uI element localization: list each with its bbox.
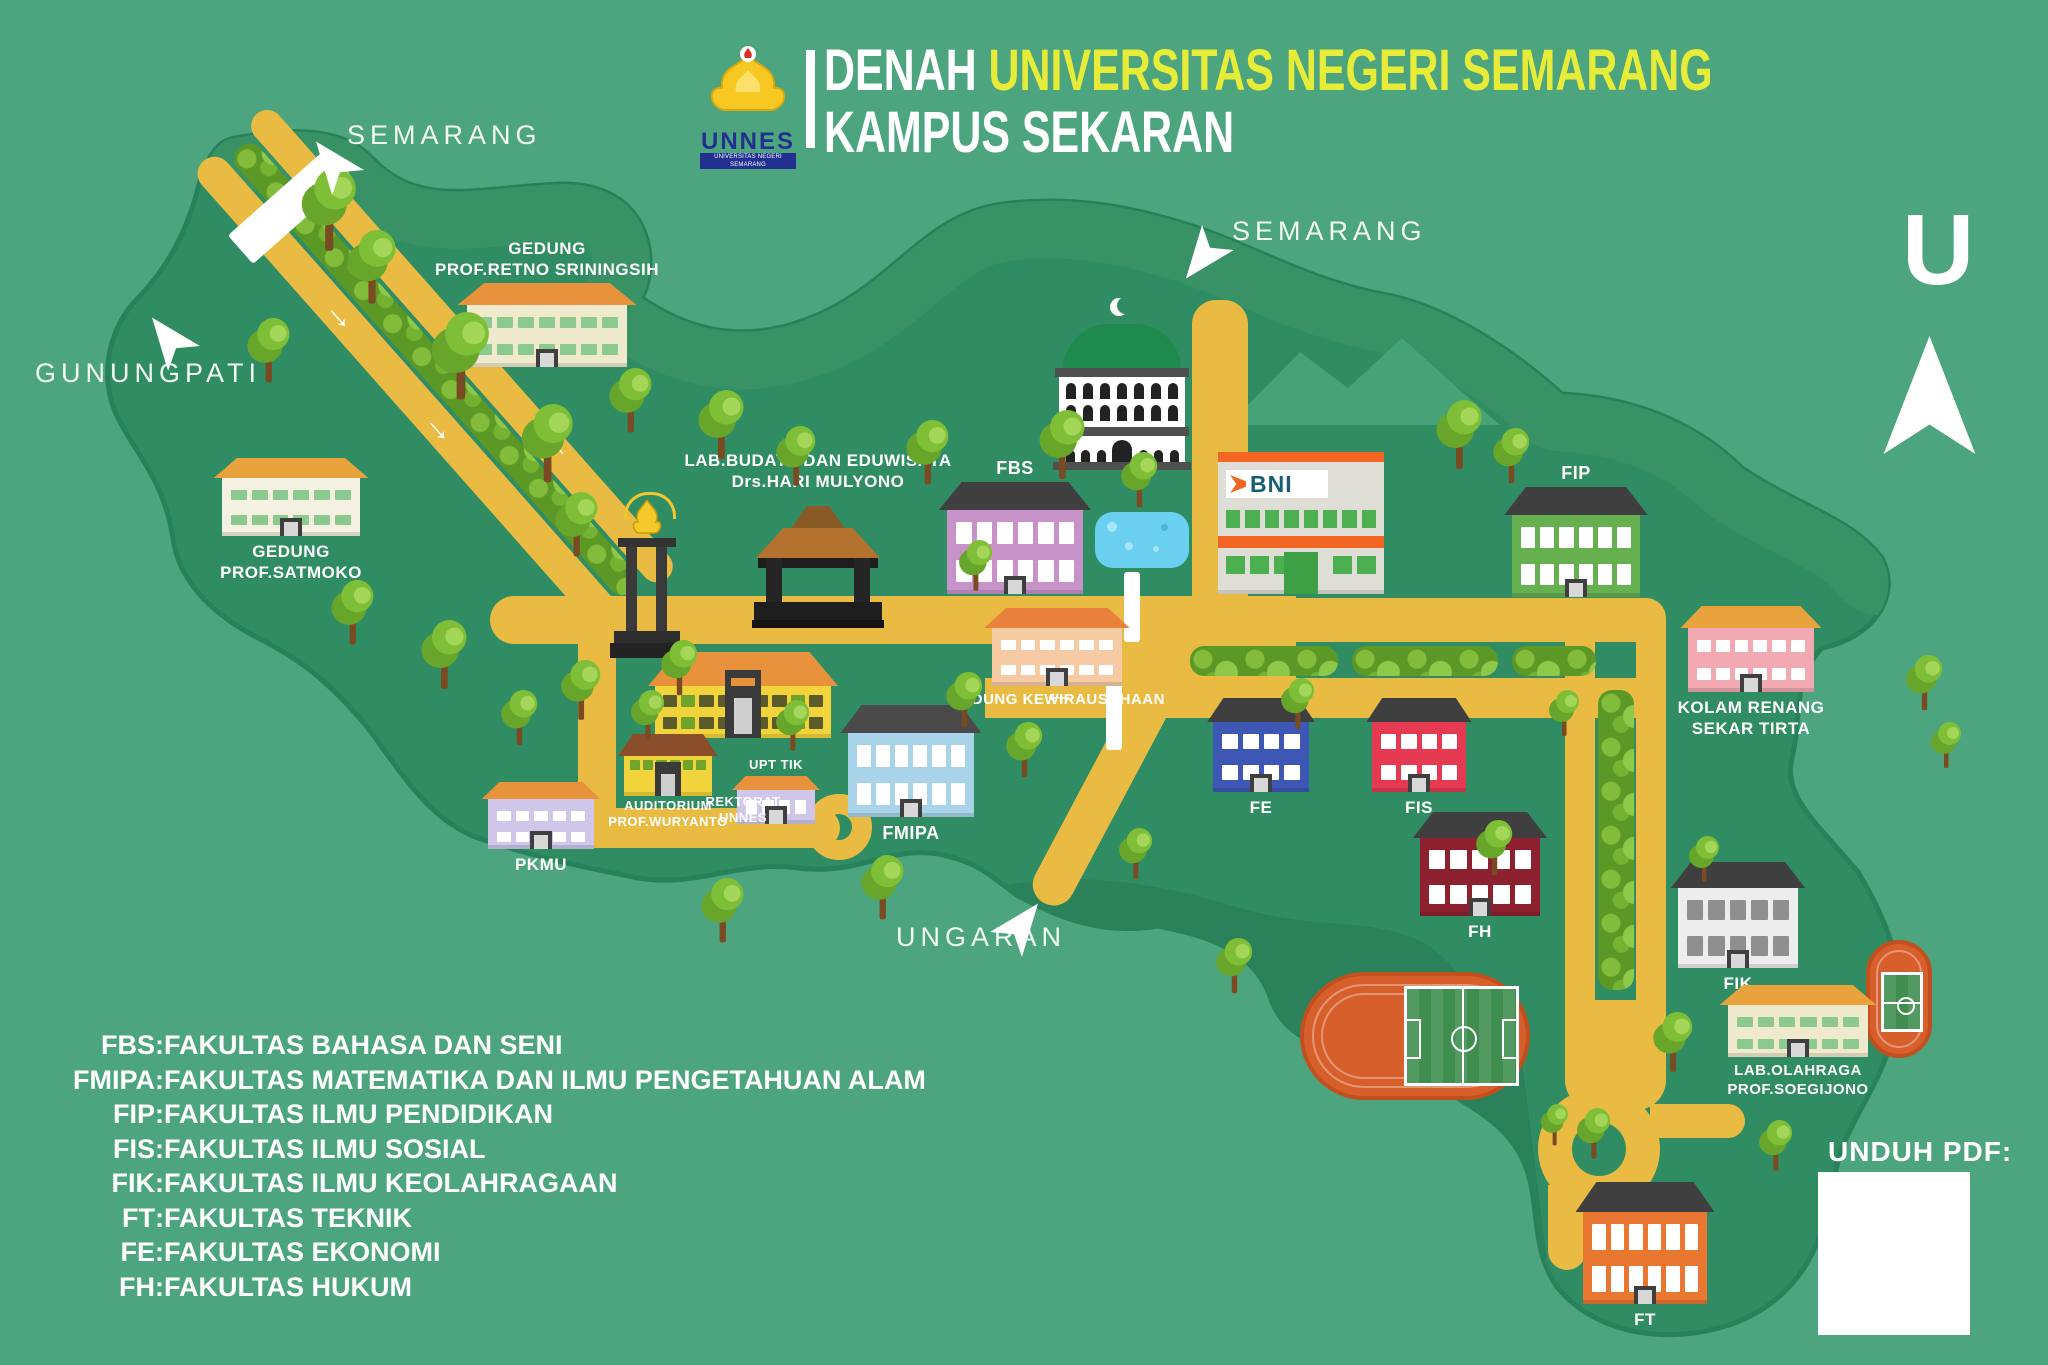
kolam_renang-door: [1740, 674, 1762, 692]
legend-abbr: FMIPA: [57, 1063, 155, 1098]
legend-item-fis: FIS :FAKULTAS ILMU SOSIAL: [57, 1132, 926, 1167]
legend-abbr: FIK: [57, 1166, 155, 1201]
median-hedge: [1512, 646, 1596, 676]
fis-door: [1408, 774, 1430, 792]
unnes-flame-icon: [632, 500, 662, 536]
tree-icon: [420, 620, 468, 689]
unnes-logo: UNNES UNIVERSITAS NEGERI SEMARANG: [700, 44, 796, 162]
tree-icon: [608, 368, 653, 432]
tree-icon: [1652, 1012, 1694, 1072]
building-label-fh: FH: [1270, 921, 1690, 942]
tree-icon: [1215, 938, 1253, 993]
legend-name: :FAKULTAS ILMU SOSIAL: [155, 1132, 485, 1167]
tree-icon: [560, 660, 602, 720]
pond: [1095, 512, 1189, 568]
tree-icon: [700, 878, 745, 942]
athletics-stadium: [1300, 972, 1530, 1100]
tree-icon: [1548, 690, 1580, 736]
download-pdf-qr-box[interactable]: [1818, 1172, 1970, 1335]
tree-icon: [1038, 410, 1086, 479]
legend: FBS :FAKULTAS BAHASA DAN SENIFMIPA :FAKU…: [57, 1028, 926, 1304]
mini-stadium: [1866, 940, 1932, 1058]
fip-door: [1565, 579, 1587, 597]
tree-icon: [905, 420, 950, 484]
legend-item-fh: FH :FAKULTAS HUKUM: [57, 1270, 926, 1305]
legend-item-fe: FE :FAKULTAS EKONOMI: [57, 1235, 926, 1270]
retno-roof: [457, 283, 636, 305]
legend-item-fbs: FBS :FAKULTAS BAHASA DAN SENI: [57, 1028, 926, 1063]
legend-abbr: FBS: [57, 1028, 155, 1063]
logo-acronym: UNNES: [700, 131, 796, 153]
legend-name: :FAKULTAS ILMU PENDIDIKAN: [155, 1097, 553, 1132]
tree-icon: [330, 580, 375, 644]
lab_olahraga-door: [1787, 1039, 1809, 1057]
tree-icon: [945, 672, 983, 727]
legend-item-fik: FIK :FAKULTAS ILMU KEOLAHRAGAAN: [57, 1166, 926, 1201]
compass-north-arrow-icon: [1872, 336, 1987, 454]
building-satmoko: GEDUNGPROF.SATMOKO: [222, 458, 360, 536]
tree-icon: [1905, 655, 1943, 710]
building-fis: FIS: [1372, 698, 1466, 792]
tree-icon: [660, 640, 698, 695]
campus-map-canvas: → → → → →: [0, 0, 2048, 1365]
building-label-auditorium: AUDITORIUMPROF.WURYANTO: [458, 798, 878, 831]
page-title: DENAH UNIVERSITAS NEGERI SEMARANG: [824, 42, 1713, 100]
direction-label-gunungpati: GUNUNGPATI: [35, 358, 261, 389]
tree-icon: [1118, 828, 1153, 879]
legend-abbr: FT: [57, 1201, 155, 1236]
tree-icon: [958, 540, 993, 591]
fis-roof: [1366, 698, 1471, 722]
football-pitch: [1404, 986, 1519, 1086]
tree-icon: [1758, 1120, 1793, 1171]
header-divider: [806, 50, 815, 148]
legend-name: :FAKULTAS TEKNIK: [155, 1201, 412, 1236]
tree-icon: [1475, 820, 1513, 875]
tree-icon: [1576, 1108, 1611, 1159]
satmoko-roof: [214, 458, 369, 478]
road-stub-east: [1650, 1104, 1745, 1138]
tree-icon: [775, 700, 810, 751]
fh-door: [1469, 898, 1491, 916]
logo-fullname: UNIVERSITAS NEGERI SEMARANG: [700, 153, 796, 169]
road-gate: [1124, 572, 1140, 642]
legend-name: :FAKULTAS BAHASA DAN SENI: [155, 1028, 563, 1063]
fip-roof: [1504, 487, 1647, 515]
building-label-pkmu: PKMU: [331, 854, 751, 875]
bni-door: [1284, 552, 1318, 594]
road-gate: [1106, 676, 1122, 750]
direction-label-semarang-n: SEMARANG: [1232, 216, 1427, 247]
tree-icon: [1435, 400, 1483, 469]
legend-abbr: FE: [57, 1235, 155, 1270]
kewirausahaan-roof: [984, 608, 1130, 628]
legend-name: :FAKULTAS ILMU KEOLAHRAGAAN: [155, 1166, 617, 1201]
building-label-ft: FT: [1435, 1309, 1855, 1330]
tree-icon: [1005, 722, 1043, 777]
tree-icon: [520, 404, 574, 482]
building-label-satmoko: GEDUNGPROF.SATMOKO: [81, 541, 501, 584]
building-label-lab_olahraga: LAB.OLAHRAGAPROF.SOEGIJONO: [1588, 1062, 2008, 1100]
legend-abbr: FIS: [57, 1132, 155, 1167]
tree-icon: [1492, 428, 1530, 483]
ft-door: [1634, 1286, 1656, 1304]
building-label-fip: FIP: [1366, 462, 1786, 485]
building-retno: GEDUNGPROF.RETNO SRININGSIH: [467, 283, 627, 367]
ft-roof: [1576, 1182, 1715, 1212]
building-ft: FT: [1583, 1182, 1707, 1304]
building-kewirausahaan: GEDUNG KEWIRAUSAHAAN: [992, 608, 1122, 686]
tree-icon: [430, 312, 491, 399]
legend-name: :FAKULTAS EKONOMI: [155, 1235, 440, 1270]
tree-icon: [554, 492, 599, 556]
tree-icon: [1540, 1104, 1569, 1145]
tree-icon: [630, 690, 665, 741]
building-lab-budaya: LAB.BUDAYA DAN EDUWISATADrs.HARI MULYONO: [752, 506, 884, 628]
tree-icon: [346, 230, 397, 304]
tree-icon: [1280, 678, 1315, 729]
kewirausahaan-door: [1046, 668, 1068, 686]
legend-abbr: FIP: [57, 1097, 155, 1132]
fik-door: [1727, 950, 1749, 968]
tree-icon: [1930, 722, 1962, 768]
fe-door: [1250, 774, 1272, 792]
bni-label: BNI: [1250, 471, 1293, 498]
tree-icon: [500, 690, 538, 745]
legend-item-fip: FIP :FAKULTAS ILMU PENDIDIKAN: [57, 1097, 926, 1132]
building-auditorium: AUDITORIUMPROF.WURYANTO: [618, 734, 718, 796]
download-pdf-label: UNDUH PDF:: [1828, 1136, 2012, 1168]
building-label-lab-budaya: LAB.BUDAYA DAN EDUWISATADrs.HARI MULYONO: [608, 450, 1028, 493]
building-bni: BNI: [1218, 452, 1384, 594]
tree-icon: [1120, 452, 1158, 507]
road-stub-south: [1548, 1185, 1586, 1270]
building-label-kolam_renang: KOLAM RENANGSEKAR TIRTA: [1541, 697, 1961, 740]
lab_olahraga-roof: [1720, 985, 1877, 1005]
direction-label-semarang-nw: SEMARANG: [347, 120, 542, 151]
median-hedge: [1190, 646, 1338, 676]
legend-item-ft: FT :FAKULTAS TEKNIK: [57, 1201, 926, 1236]
page-subtitle: KAMPUS SEKARAN: [824, 104, 1713, 162]
pkmu-door: [530, 831, 552, 849]
legend-name: :FAKULTAS HUKUM: [155, 1270, 412, 1305]
road-south-east-lane: [1636, 640, 1666, 1010]
bni-logo-icon: [1230, 475, 1246, 493]
building-kolam_renang: KOLAM RENANGSEKAR TIRTA: [1688, 606, 1814, 692]
tree-icon: [697, 390, 745, 459]
median-hedge: [1352, 646, 1498, 676]
mosque-dome: [1063, 324, 1181, 370]
legend-name: :FAKULTAS MATEMATIKA DAN ILMU PENGETAHUA…: [155, 1063, 926, 1098]
retno-door: [536, 349, 558, 367]
campus-monument: [608, 492, 686, 658]
building-lab_olahraga: LAB.OLAHRAGAPROF.SOEGIJONO: [1728, 985, 1868, 1057]
satmoko-door: [280, 518, 302, 536]
tree-icon: [860, 855, 905, 919]
road-east-north-lane: [1246, 598, 1666, 642]
fbs-door: [1004, 576, 1026, 594]
tree-icon: [1688, 836, 1720, 882]
kolam_renang-roof: [1680, 606, 1821, 628]
building-fip: FIP: [1512, 487, 1640, 597]
legend-item-fmipa: FMIPA :FAKULTAS MATEMATIKA DAN ILMU PENG…: [57, 1063, 926, 1098]
legend-abbr: FH: [57, 1270, 155, 1305]
building-label-retno: GEDUNGPROF.RETNO SRININGSIH: [337, 238, 757, 281]
building-label-fis: FIS: [1209, 797, 1629, 818]
tree-icon: [775, 426, 817, 486]
bni-sign: BNI: [1226, 470, 1328, 498]
compass-north-label: U: [1902, 200, 1974, 300]
